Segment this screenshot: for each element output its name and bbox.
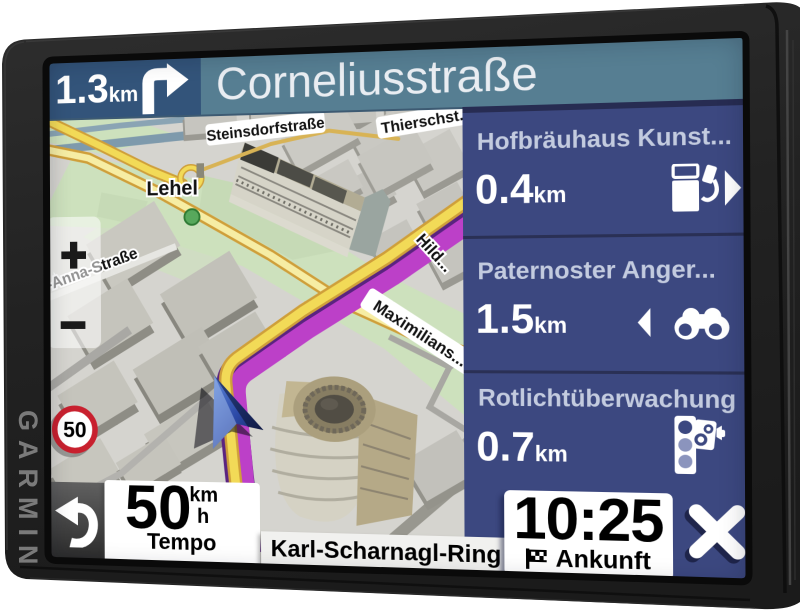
svg-text:GARMIN: GARMIN — [13, 410, 43, 574]
